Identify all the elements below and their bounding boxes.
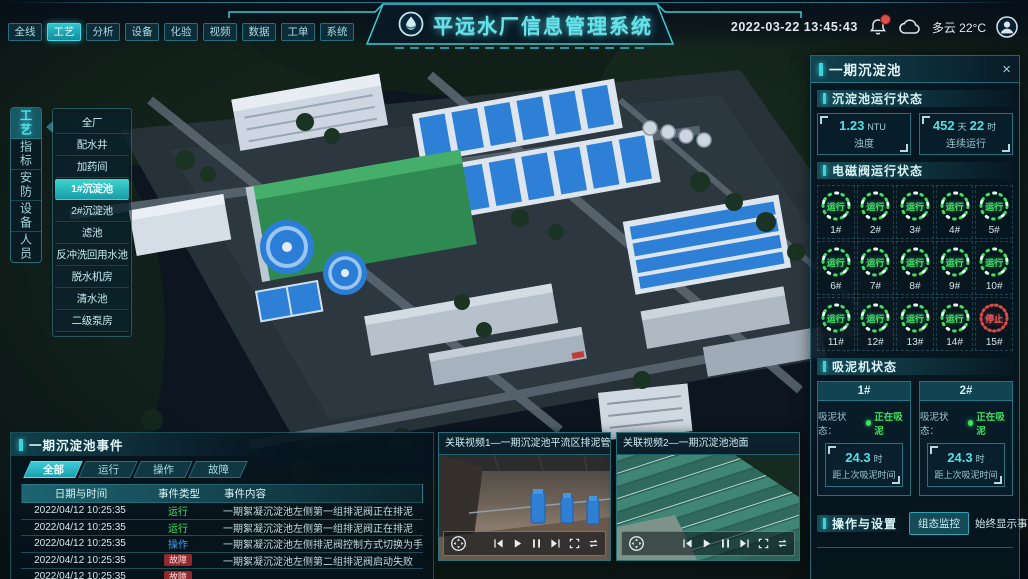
menu-item-dewatering-room[interactable]: 脱水机房 <box>55 267 129 288</box>
event-tab-fault[interactable]: 故障 <box>188 461 248 478</box>
sidebar-tab-label: 人员 <box>18 233 35 261</box>
valve-gauge-6: 运行 <box>819 245 853 279</box>
valve-status: 停止 <box>977 301 1011 335</box>
valve-8: 运行8# <box>896 241 934 295</box>
event-row-2: 2022/04/12 10:25:35操作一期絮凝沉淀池左侧排泥阀控制方式切换为… <box>21 536 423 553</box>
event-type: 运行 <box>139 503 217 518</box>
video-2-title: 关联视频2—一期沉淀池池面 <box>617 433 799 455</box>
valve-11: 运行11# <box>817 297 855 351</box>
valve-15: 停止15# <box>975 297 1013 351</box>
valve-status: 运行 <box>898 301 932 335</box>
scraper-value-label: 距上次吸泥时间 <box>928 468 1004 481</box>
valve-status: 运行 <box>858 301 892 335</box>
event-row-4: 2022/04/12 10:25:35故障 <box>21 569 423 579</box>
stat-value: 1.23NTU <box>839 118 889 133</box>
section-scrapers-title: 吸泥机状态 <box>817 358 1013 375</box>
menu-item-filter[interactable]: 滤池 <box>55 223 129 244</box>
play-icon[interactable] <box>512 538 523 549</box>
status-dot-icon <box>968 420 974 426</box>
valve-9: 运行9# <box>936 241 974 295</box>
scraper-status: 正在吸泥 <box>976 409 1012 437</box>
valve-label: 15# <box>986 337 1003 348</box>
valve-status: 运行 <box>819 245 853 279</box>
valve-label: 1# <box>830 225 841 236</box>
valve-status: 运行 <box>819 301 853 335</box>
event-time: 2022/04/12 10:25:35 <box>21 555 139 566</box>
valve-10: 运行10# <box>975 241 1013 295</box>
event-type: 故障 <box>139 571 217 579</box>
scraper-value-box: 24.3时距上次吸泥时间 <box>927 443 1005 487</box>
sidebar-tab-devices[interactable]: 设备 <box>11 201 41 232</box>
skip-back-icon[interactable] <box>493 538 504 549</box>
nav-tab-lab-test[interactable]: 化验 <box>164 23 198 41</box>
valve-5: 运行5# <box>975 185 1013 239</box>
valve-12: 运行12# <box>857 297 895 351</box>
page-title: 平远水厂信息管理系统 <box>433 10 653 39</box>
panel-title-bar: 一期沉淀池 × <box>811 56 1019 83</box>
user-avatar-icon[interactable] <box>996 16 1018 38</box>
run-status-cards: 1.23NTU浊度452天22时连续运行 <box>817 113 1013 155</box>
weather-text: 多云 22°C <box>932 19 986 36</box>
video-panel-1: 关联视频1—一期沉淀池平流区排泥管廊 <box>438 432 611 561</box>
nav-tab-data[interactable]: 数据 <box>242 23 276 41</box>
valve-label: 5# <box>989 225 1000 236</box>
valve-status: 运行 <box>858 189 892 223</box>
event-content: 一期絮凝沉淀池左侧第二组排泥阀启动失败 <box>217 553 423 568</box>
event-row-0: 2022/04/12 10:25:35运行一期絮凝沉淀池左侧第一组排泥阀正在排泥 <box>21 503 423 520</box>
valve-status: 运行 <box>858 245 892 279</box>
valve-gauge-4: 运行 <box>938 189 972 223</box>
event-table-header: 日期与时间事件类型事件内容 <box>21 484 423 503</box>
valve-label: 14# <box>946 337 963 348</box>
fullscreen-icon[interactable] <box>569 538 580 549</box>
scraper-value-label: 距上次吸泥时间 <box>826 468 902 481</box>
menu-item-water-distribution-well[interactable]: 配水井 <box>55 135 129 156</box>
event-type: 运行 <box>139 520 217 535</box>
loop-icon[interactable] <box>588 538 599 549</box>
event-time: 2022/04/12 10:25:35 <box>21 505 139 516</box>
event-time: 2022/04/12 10:25:35 <box>21 522 139 533</box>
scraper-value-box: 24.3时距上次吸泥时间 <box>825 443 903 487</box>
event-panel: 一期沉淀池事件 全部运行操作故障 日期与时间事件类型事件内容 2022/04/1… <box>10 432 434 579</box>
valve-4: 运行4# <box>936 185 974 239</box>
valve-status: 运行 <box>977 189 1011 223</box>
section-settings-title: 操作与设置 <box>817 515 903 532</box>
event-type: 操作 <box>139 536 217 551</box>
valve-1: 运行1# <box>817 185 855 239</box>
settings-row: 操作与设置 组态监控 始终显示事件： <box>817 512 1013 548</box>
nav-tab-work-order[interactable]: 工单 <box>281 23 315 41</box>
stat-card-turbidity: 1.23NTU浊度 <box>817 113 911 155</box>
event-column-2: 事件内容 <box>218 486 422 501</box>
valve-status: 运行 <box>898 245 932 279</box>
valve-label: 2# <box>870 225 881 236</box>
event-tab-run[interactable]: 运行 <box>78 461 138 478</box>
menu-item-sedimentation-1[interactable]: 1#沉淀池 <box>55 179 129 200</box>
event-column-0: 日期与时间 <box>22 486 140 501</box>
section-valves-title: 电磁阀运行状态 <box>817 162 1013 179</box>
valve-label: 6# <box>830 281 841 292</box>
valve-label: 7# <box>870 281 881 292</box>
pan-control-icon[interactable] <box>450 535 467 552</box>
fullscreen-icon[interactable] <box>758 538 769 549</box>
sidebar-tab-label: 指标 <box>18 140 35 168</box>
valve-gauge-2: 运行 <box>858 189 892 223</box>
nav-tab-process[interactable]: 工艺 <box>47 23 81 41</box>
valve-status: 运行 <box>977 245 1011 279</box>
scraper-id: 1# <box>818 382 910 401</box>
valve-label: 12# <box>867 337 884 348</box>
valve-gauge-12: 运行 <box>858 301 892 335</box>
sidebar-tab-label: 设备 <box>18 202 35 230</box>
event-tab-all[interactable]: 全部 <box>23 461 83 478</box>
detail-panel: 一期沉淀池 × 沉淀池运行状态 1.23NTU浊度452天22时连续运行 电磁阀… <box>810 55 1020 579</box>
menu-item-secondary-pump-room[interactable]: 二级泵房 <box>55 311 129 332</box>
nav-tab-overview[interactable]: 全线 <box>8 23 42 41</box>
valve-14: 运行14# <box>936 297 974 351</box>
scraper-status: 正在吸泥 <box>874 409 910 437</box>
valve-13: 运行13# <box>896 297 934 351</box>
sidebar-tab-security[interactable]: 安防 <box>11 170 41 201</box>
sidebar-tab-process[interactable]: 工艺 <box>11 108 41 139</box>
valve-label: 11# <box>828 337 844 348</box>
panel-title: 一期沉淀池 <box>829 59 1002 79</box>
sidebar-tab-label: 安防 <box>18 171 35 199</box>
event-tab-operate[interactable]: 操作 <box>133 461 193 478</box>
valve-label: 3# <box>909 225 920 236</box>
notification-bell-icon[interactable] <box>868 17 888 37</box>
video-1-title: 关联视频1—一期沉淀池平流区排泥管廊 <box>439 433 610 455</box>
valve-gauge-11: 运行 <box>819 301 853 335</box>
video-2-feed <box>617 455 799 560</box>
stat-card-uptime: 452天22时连续运行 <box>919 113 1013 155</box>
scraper-value: 24.3时 <box>826 450 902 465</box>
stat-label: 连续运行 <box>946 135 986 150</box>
section-run-status-title: 沉淀池运行状态 <box>817 90 1013 107</box>
event-panel-title: 一期沉淀池事件 <box>11 433 433 456</box>
stat-value: 452天22时 <box>933 118 999 133</box>
menu-item-sedimentation-2[interactable]: 2#沉淀池 <box>55 201 129 222</box>
menu-item-whole-plant[interactable]: 全厂 <box>55 113 129 134</box>
menu-item-backwash-reuse-tank[interactable]: 反冲洗回用水池 <box>55 245 129 266</box>
event-content: 一期絮凝沉淀池左侧排泥阀控制方式切换为手动 <box>217 536 423 551</box>
skip-back-icon[interactable] <box>682 538 693 549</box>
valve-gauge-5: 运行 <box>977 189 1011 223</box>
scraper-card-2: 2#吸泥状态：正在吸泥24.3时距上次吸泥时间 <box>919 381 1013 496</box>
scraper-id: 2# <box>920 382 1012 401</box>
header-right: 2022-03-22 13:45:43 多云 22°C <box>731 16 1018 38</box>
always-show-events-label: 始终显示事件： <box>975 516 1028 531</box>
valve-label: 8# <box>909 281 920 292</box>
dashboard: 全线工艺分析设备化验视频数据工单系统 平远水厂信息管理系统 2022-03-22… <box>0 0 1028 579</box>
event-time: 2022/04/12 10:25:35 <box>21 571 139 579</box>
event-content: 一期絮凝沉淀池左侧第一组排泥阀正在排泥 <box>217 503 423 518</box>
sidebar-tab-metrics[interactable]: 指标 <box>11 139 41 170</box>
sidebar-tab-label: 工艺 <box>18 109 35 137</box>
valve-label: 9# <box>949 281 960 292</box>
valve-gauge-9: 运行 <box>938 245 972 279</box>
scraper-cards: 1#吸泥状态：正在吸泥24.3时距上次吸泥时间2#吸泥状态：正在吸泥24.3时距… <box>817 381 1013 496</box>
weather-cloud-icon <box>898 18 922 36</box>
valve-gauge-13: 运行 <box>898 301 932 335</box>
sidebar-tabs: 工艺指标安防设备人员 <box>10 107 42 263</box>
valve-gauge-10: 运行 <box>977 245 1011 279</box>
skip-forward-icon[interactable] <box>739 538 750 549</box>
valve-label: 4# <box>949 225 960 236</box>
pan-control-icon[interactable] <box>628 535 645 552</box>
pause-icon[interactable] <box>531 538 542 549</box>
event-column-1: 事件类型 <box>140 486 218 501</box>
fault-badge: 故障 <box>164 571 192 579</box>
area-menu: 全厂配水井加药间1#沉淀池2#沉淀池滤池反冲洗回用水池脱水机房清水池二级泵房 <box>52 108 132 337</box>
datetime: 2022-03-22 13:45:43 <box>731 20 858 34</box>
valve-6: 运行6# <box>817 241 855 295</box>
valve-grid: 运行1#运行2#运行3#运行4#运行5#运行6#运行7#运行8#运行9#运行10… <box>817 185 1013 351</box>
scraper-value: 24.3时 <box>928 450 1004 465</box>
nav-tab-devices[interactable]: 设备 <box>125 23 159 41</box>
nav-tab-analysis[interactable]: 分析 <box>86 23 120 41</box>
valve-3: 运行3# <box>896 185 934 239</box>
skip-forward-icon[interactable] <box>550 538 561 549</box>
video-1-feed <box>439 455 610 560</box>
valve-status: 运行 <box>938 189 972 223</box>
event-row-1: 2022/04/12 10:25:35运行一期絮凝沉淀池左侧第一组排泥阀正在排泥 <box>21 520 423 537</box>
scraper-card-1: 1#吸泥状态：正在吸泥24.3时距上次吸泥时间 <box>817 381 911 496</box>
valve-status: 运行 <box>819 189 853 223</box>
close-icon[interactable]: × <box>1002 62 1011 77</box>
fault-badge: 故障 <box>164 554 192 566</box>
scraper-status-label: 吸泥状态： <box>920 409 965 437</box>
valve-2: 运行2# <box>857 185 895 239</box>
notification-badge <box>880 14 891 25</box>
stat-label: 浊度 <box>854 135 874 150</box>
valve-status: 运行 <box>938 301 972 335</box>
sidebar-tab-personnel[interactable]: 人员 <box>11 232 41 262</box>
valve-7: 运行7# <box>857 241 895 295</box>
scada-monitor-button[interactable]: 组态监控 <box>909 512 969 535</box>
event-content: 一期絮凝沉淀池左侧第一组排泥阀正在排泥 <box>217 520 423 535</box>
nav-tabs: 全线工艺分析设备化验视频数据工单系统 <box>8 23 354 41</box>
valve-status: 运行 <box>938 245 972 279</box>
app-header: 平远水厂信息管理系统 <box>398 7 653 41</box>
valve-gauge-8: 运行 <box>898 245 932 279</box>
video-panel-2: 关联视频2—一期沉淀池池面 <box>616 432 800 561</box>
menu-item-clear-water-tank[interactable]: 清水池 <box>55 289 129 310</box>
nav-tab-system[interactable]: 系统 <box>320 23 354 41</box>
menu-item-dosing-room[interactable]: 加药间 <box>55 157 129 178</box>
event-tabs: 全部运行操作故障 <box>27 461 433 478</box>
status-dot-icon <box>866 420 872 426</box>
valve-gauge-3: 运行 <box>898 189 932 223</box>
valve-gauge-14: 运行 <box>938 301 972 335</box>
valve-label: 13# <box>907 337 924 348</box>
event-time: 2022/04/12 10:25:35 <box>21 538 139 549</box>
scraper-status-label: 吸泥状态： <box>818 409 863 437</box>
event-row-3: 2022/04/12 10:25:35故障一期絮凝沉淀池左侧第二组排泥阀启动失败 <box>21 553 423 570</box>
video-1-controls <box>443 531 606 556</box>
video-2-controls <box>621 531 795 556</box>
play-icon[interactable] <box>701 538 712 549</box>
nav-tab-video[interactable]: 视频 <box>203 23 237 41</box>
pause-icon[interactable] <box>720 538 731 549</box>
water-drop-logo-icon <box>398 11 424 37</box>
valve-status: 运行 <box>898 189 932 223</box>
event-type: 故障 <box>139 554 217 566</box>
loop-icon[interactable] <box>777 538 788 549</box>
valve-gauge-1: 运行 <box>819 189 853 223</box>
valve-label: 10# <box>986 281 1003 292</box>
event-rows: 2022/04/12 10:25:35运行一期絮凝沉淀池左侧第一组排泥阀正在排泥… <box>21 503 423 579</box>
valve-gauge-15: 停止 <box>977 301 1011 335</box>
valve-gauge-7: 运行 <box>858 245 892 279</box>
